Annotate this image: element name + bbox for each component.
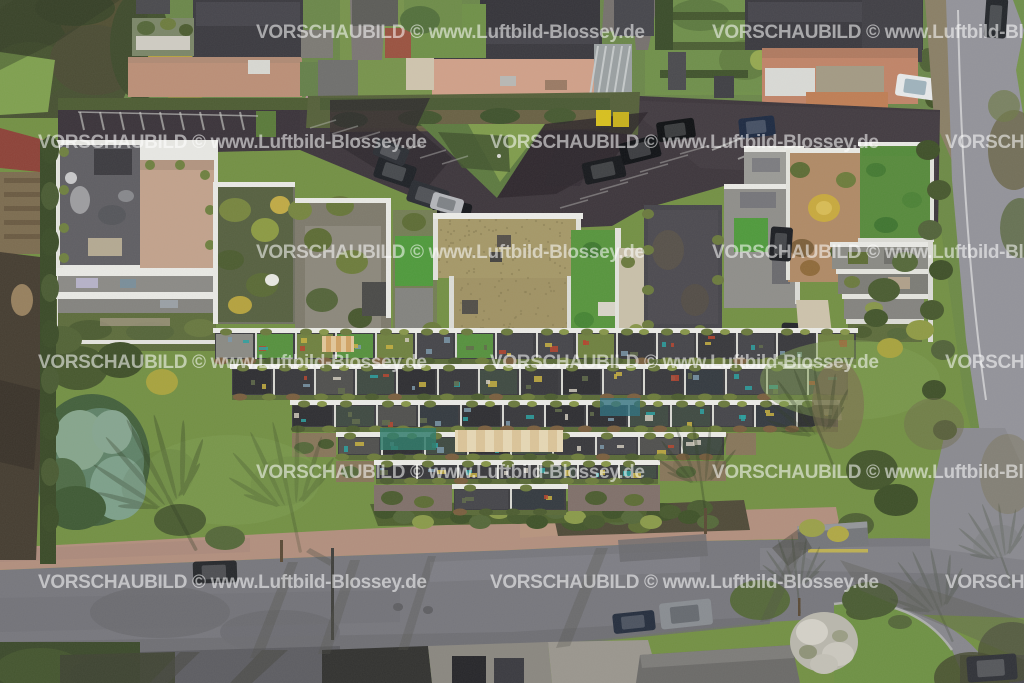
svg-text:VORSCHAUBILD © www.Luftbild-Bl: VORSCHAUBILD © www.Luftbild-Blossey.de	[490, 352, 879, 373]
svg-text:VORSCHAUBILD © www.Luftbild-Bl: VORSCHAUBILD © www.Luftbild-Blossey.de	[38, 352, 427, 373]
svg-text:VORSCHAUBILD © www.Luftbild-Bl: VORSCHAUBILD © www.Luftbild-Blossey.de	[945, 572, 1024, 593]
svg-text:VORSCHAUBILD © www.Luftbild-Bl: VORSCHAUBILD © www.Luftbild-Blossey.de	[945, 352, 1024, 373]
svg-text:VORSCHAUBILD © www.Luftbild-Bl: VORSCHAUBILD © www.Luftbild-Blossey.de	[38, 572, 427, 593]
svg-text:VORSCHAUBILD © www.Luftbild-Bl: VORSCHAUBILD © www.Luftbild-Blossey.de	[945, 132, 1024, 153]
svg-text:VORSCHAUBILD © www.Luftbild-Bl: VORSCHAUBILD © www.Luftbild-Blossey.de	[490, 132, 879, 153]
svg-text:VORSCHAUBILD © www.Luftbild-Bl: VORSCHAUBILD © www.Luftbild-Blossey.de	[490, 572, 879, 593]
svg-text:VORSCHAUBILD © www.Luftbild-Bl: VORSCHAUBILD © www.Luftbild-Blossey.de	[256, 462, 645, 483]
svg-text:VORSCHAUBILD © www.Luftbild-Bl: VORSCHAUBILD © www.Luftbild-Blossey.de	[712, 22, 1024, 43]
svg-text:VORSCHAUBILD © www.Luftbild-Bl: VORSCHAUBILD © www.Luftbild-Blossey.de	[712, 242, 1024, 263]
svg-text:VORSCHAUBILD © www.Luftbild-Bl: VORSCHAUBILD © www.Luftbild-Blossey.de	[256, 242, 645, 263]
svg-text:VORSCHAUBILD © www.Luftbild-Bl: VORSCHAUBILD © www.Luftbild-Blossey.de	[256, 22, 645, 43]
svg-text:VORSCHAUBILD © www.Luftbild-Bl: VORSCHAUBILD © www.Luftbild-Blossey.de	[712, 462, 1024, 483]
svg-text:VORSCHAUBILD © www.Luftbild-Bl: VORSCHAUBILD © www.Luftbild-Blossey.de	[38, 132, 427, 153]
